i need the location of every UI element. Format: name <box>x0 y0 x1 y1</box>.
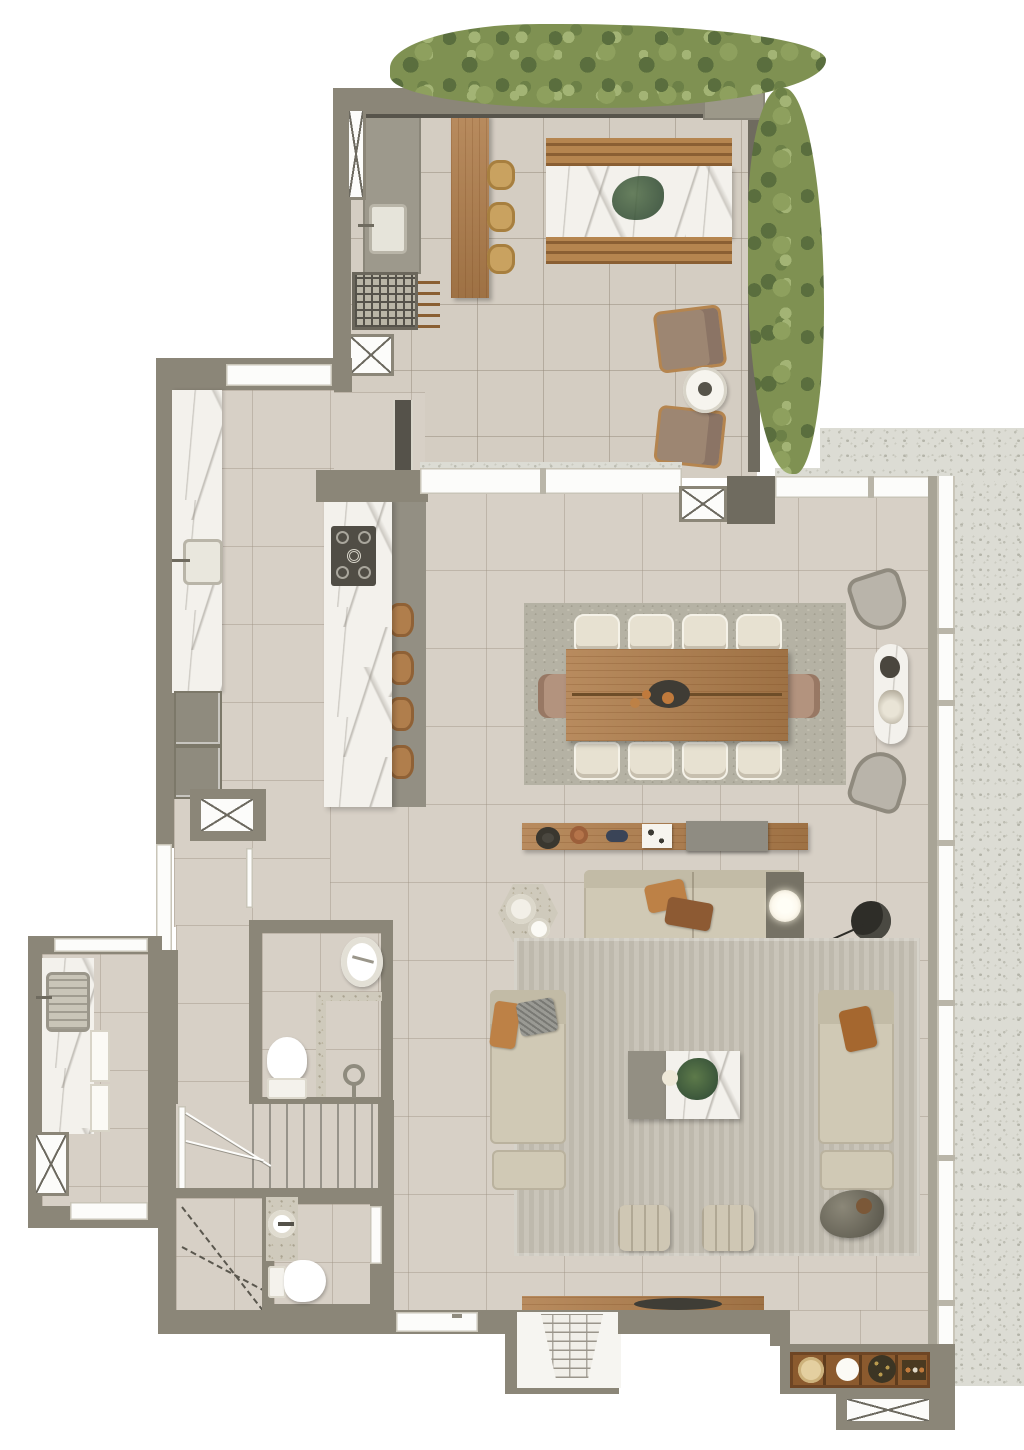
bar-cabinet-shelf <box>902 1360 926 1380</box>
shower-stem-icon <box>352 1084 356 1098</box>
north-window <box>775 476 940 498</box>
dining-chair <box>736 614 782 652</box>
toilet <box>267 1037 307 1081</box>
stair-treads <box>252 1104 390 1194</box>
bar-cabinet-bowl-ornate <box>868 1355 896 1383</box>
powder-toilet-bowl <box>284 1260 326 1302</box>
cooktop-burner <box>358 531 371 544</box>
cooktop-burner <box>336 566 349 579</box>
shower-drain-icon <box>343 1064 365 1086</box>
laundry-service-door <box>70 1202 148 1220</box>
cooktop-burner <box>336 531 349 544</box>
striped-pouf <box>702 1205 754 1251</box>
console-decor-blue <box>606 830 628 842</box>
utility-hatch-terrace-wall <box>346 108 366 200</box>
shaft-hatch-bottom-right <box>844 1396 932 1424</box>
bar-cabinet-bowl-cream <box>798 1357 824 1383</box>
dining-chair <box>574 742 620 780</box>
shaft-hatch-terrace <box>348 334 394 376</box>
console-tv-panel <box>686 821 768 851</box>
striped-pouf <box>618 1205 670 1251</box>
window-mullion <box>937 700 955 706</box>
bar-stool <box>487 244 515 274</box>
cooktop-center-ring <box>347 549 361 563</box>
north-wall-segment <box>727 476 775 524</box>
terrace-lounge-chair <box>652 304 727 374</box>
shaft-hatch-laundry <box>33 1132 69 1196</box>
organic-table-decor <box>856 1198 872 1214</box>
shower-partition-v <box>316 995 326 1097</box>
kitchen-appliance-front <box>174 691 222 746</box>
shaft-hatch-hall <box>198 796 256 834</box>
chaise-pillow-gray <box>515 997 558 1037</box>
kitchen-sink-faucet-icon <box>172 559 190 562</box>
dining-chair <box>682 742 728 780</box>
bottom-wall-jamb <box>770 1310 790 1346</box>
capsule-table-decor <box>880 656 900 678</box>
fruit <box>662 692 674 704</box>
dining-end-chair <box>786 674 820 718</box>
dining-chair <box>628 742 674 780</box>
dining-chair <box>574 614 620 652</box>
capsule-table-flowers <box>878 690 904 724</box>
laundry-window <box>54 938 148 952</box>
laundry-appliance-front <box>90 1030 110 1082</box>
window-mullion <box>868 476 874 498</box>
console-vase-terracotta <box>570 826 588 844</box>
terrace-sink <box>369 204 407 254</box>
window-mullion <box>937 1155 955 1161</box>
stair-glass-edge <box>178 1106 186 1192</box>
bar-cabinet-bowl-white <box>836 1358 859 1381</box>
window-mullion <box>937 628 955 634</box>
coffee-table-bowl <box>662 1070 678 1086</box>
window-mullion <box>540 468 546 494</box>
coffee-table-plant <box>676 1058 718 1100</box>
console-art-card <box>642 824 672 848</box>
window-mullion <box>937 1300 955 1306</box>
terrace-sink-faucet-icon <box>358 224 374 227</box>
powder-door <box>370 1206 382 1264</box>
hall-door-leaf <box>246 848 253 908</box>
kitchen-sink <box>183 539 223 585</box>
cooktop-burner <box>358 566 371 579</box>
laundry-faucet-icon <box>36 996 52 999</box>
grill <box>352 272 418 330</box>
laundry-sink <box>46 972 90 1032</box>
hall-floor <box>176 925 254 1107</box>
laundry-appliance-front <box>90 1084 110 1132</box>
window-mullion <box>937 840 955 846</box>
floor-plan <box>0 0 1024 1450</box>
terrace-bar-table <box>451 114 489 298</box>
chaise-left-ottoman <box>492 1150 566 1190</box>
powder-faucet-icon <box>278 1222 294 1226</box>
shower-partition-h <box>316 992 382 1001</box>
dining-chair <box>736 742 782 780</box>
tall-cabinet <box>393 400 413 470</box>
balcony-floor-right <box>953 482 1024 1386</box>
kitchen-top-window <box>226 364 332 386</box>
toilet-tank <box>267 1078 307 1099</box>
grill-skewers <box>418 276 440 328</box>
window-mullion <box>937 1000 955 1006</box>
dining-chair <box>682 614 728 652</box>
fruit <box>630 698 640 708</box>
fruit <box>642 690 651 699</box>
bar-stool <box>487 202 515 232</box>
bathroom-basin <box>341 937 383 987</box>
outdoor-bench-top <box>546 138 732 166</box>
mini-side-table <box>528 918 550 940</box>
terrace-side-table-decor <box>698 382 712 396</box>
table-lamp-glow <box>769 890 801 922</box>
shaft-hatch-north <box>679 486 727 522</box>
dining-chair <box>628 614 674 652</box>
bar-stool <box>487 160 515 190</box>
terrace-south-window <box>420 468 682 494</box>
coffee-table-base <box>628 1051 668 1119</box>
entry-console-platter <box>634 1298 722 1310</box>
island-wall-stub <box>316 470 428 502</box>
bottom-right-bay-floor <box>782 1310 938 1344</box>
outdoor-bench-bottom <box>546 237 732 264</box>
entry-door-handle <box>452 1314 462 1318</box>
chaise-right-ottoman <box>820 1150 894 1190</box>
terrace-lounge-chair <box>653 405 727 470</box>
console-disc-decor <box>536 827 560 849</box>
entry-door <box>396 1312 478 1332</box>
arc-lamp-base <box>851 901 891 941</box>
bottom-wall-center <box>618 1310 790 1334</box>
right-window-band <box>937 476 955 1386</box>
